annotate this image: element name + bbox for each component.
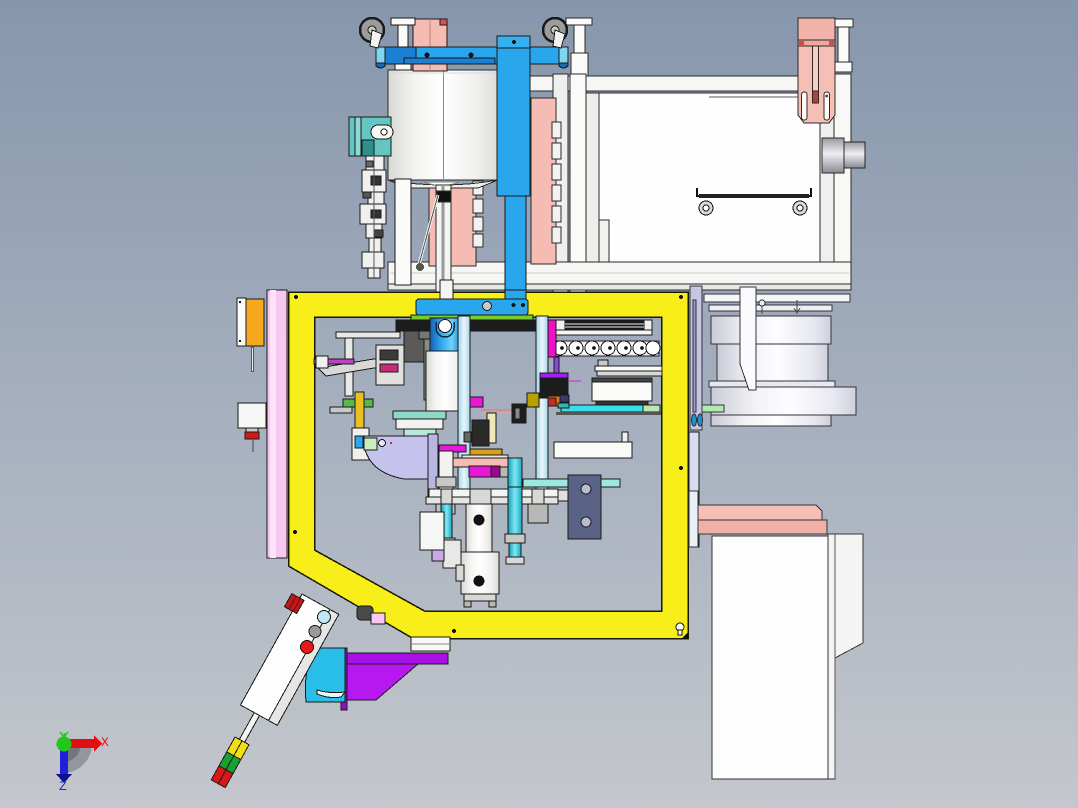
svg-text:Z: Z <box>59 779 67 794</box>
svg-text:X: X <box>101 735 109 750</box>
